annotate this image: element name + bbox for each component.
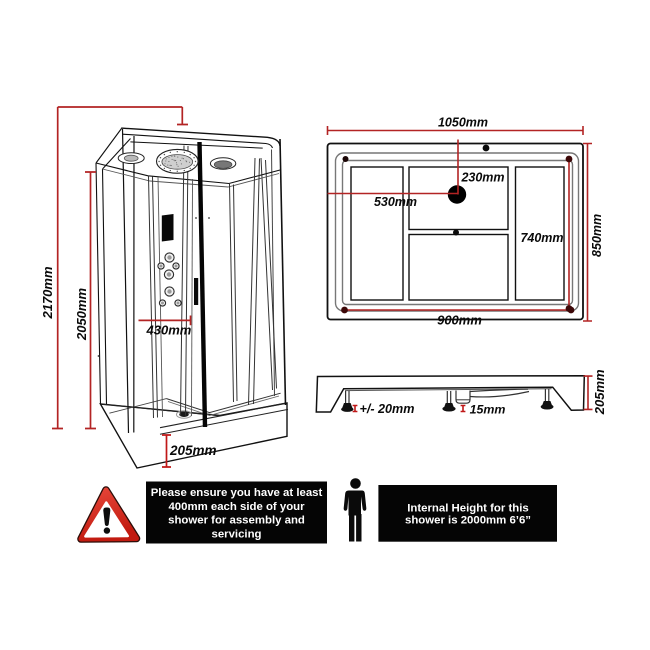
- svg-text:servicing: servicing: [211, 528, 261, 540]
- svg-text:900mm: 900mm: [437, 313, 482, 328]
- svg-text:850mm: 850mm: [590, 214, 604, 257]
- svg-text:530mm: 530mm: [374, 195, 417, 209]
- svg-text:205mm: 205mm: [169, 443, 217, 458]
- svg-text:2050mm: 2050mm: [74, 288, 89, 341]
- svg-text:205mm: 205mm: [592, 369, 607, 415]
- svg-text:shower is 2000mm 6’6”: shower is 2000mm 6’6”: [405, 515, 531, 527]
- svg-text:+/- 20mm: +/- 20mm: [360, 402, 415, 416]
- svg-text:740mm: 740mm: [520, 231, 563, 245]
- svg-text:Internal Height for this: Internal Height for this: [407, 503, 529, 515]
- svg-text:2170mm: 2170mm: [40, 266, 55, 319]
- svg-text:430mm: 430mm: [146, 323, 192, 338]
- svg-text:230mm: 230mm: [460, 171, 504, 185]
- svg-text:1050mm: 1050mm: [438, 116, 488, 130]
- svg-text:shower for assembly and: shower for assembly and: [168, 515, 305, 527]
- svg-text:400mm each side of your: 400mm each side of your: [168, 501, 305, 513]
- svg-text:15mm: 15mm: [470, 403, 506, 417]
- svg-text:Please ensure you have at leas: Please ensure you have at least: [151, 487, 323, 499]
